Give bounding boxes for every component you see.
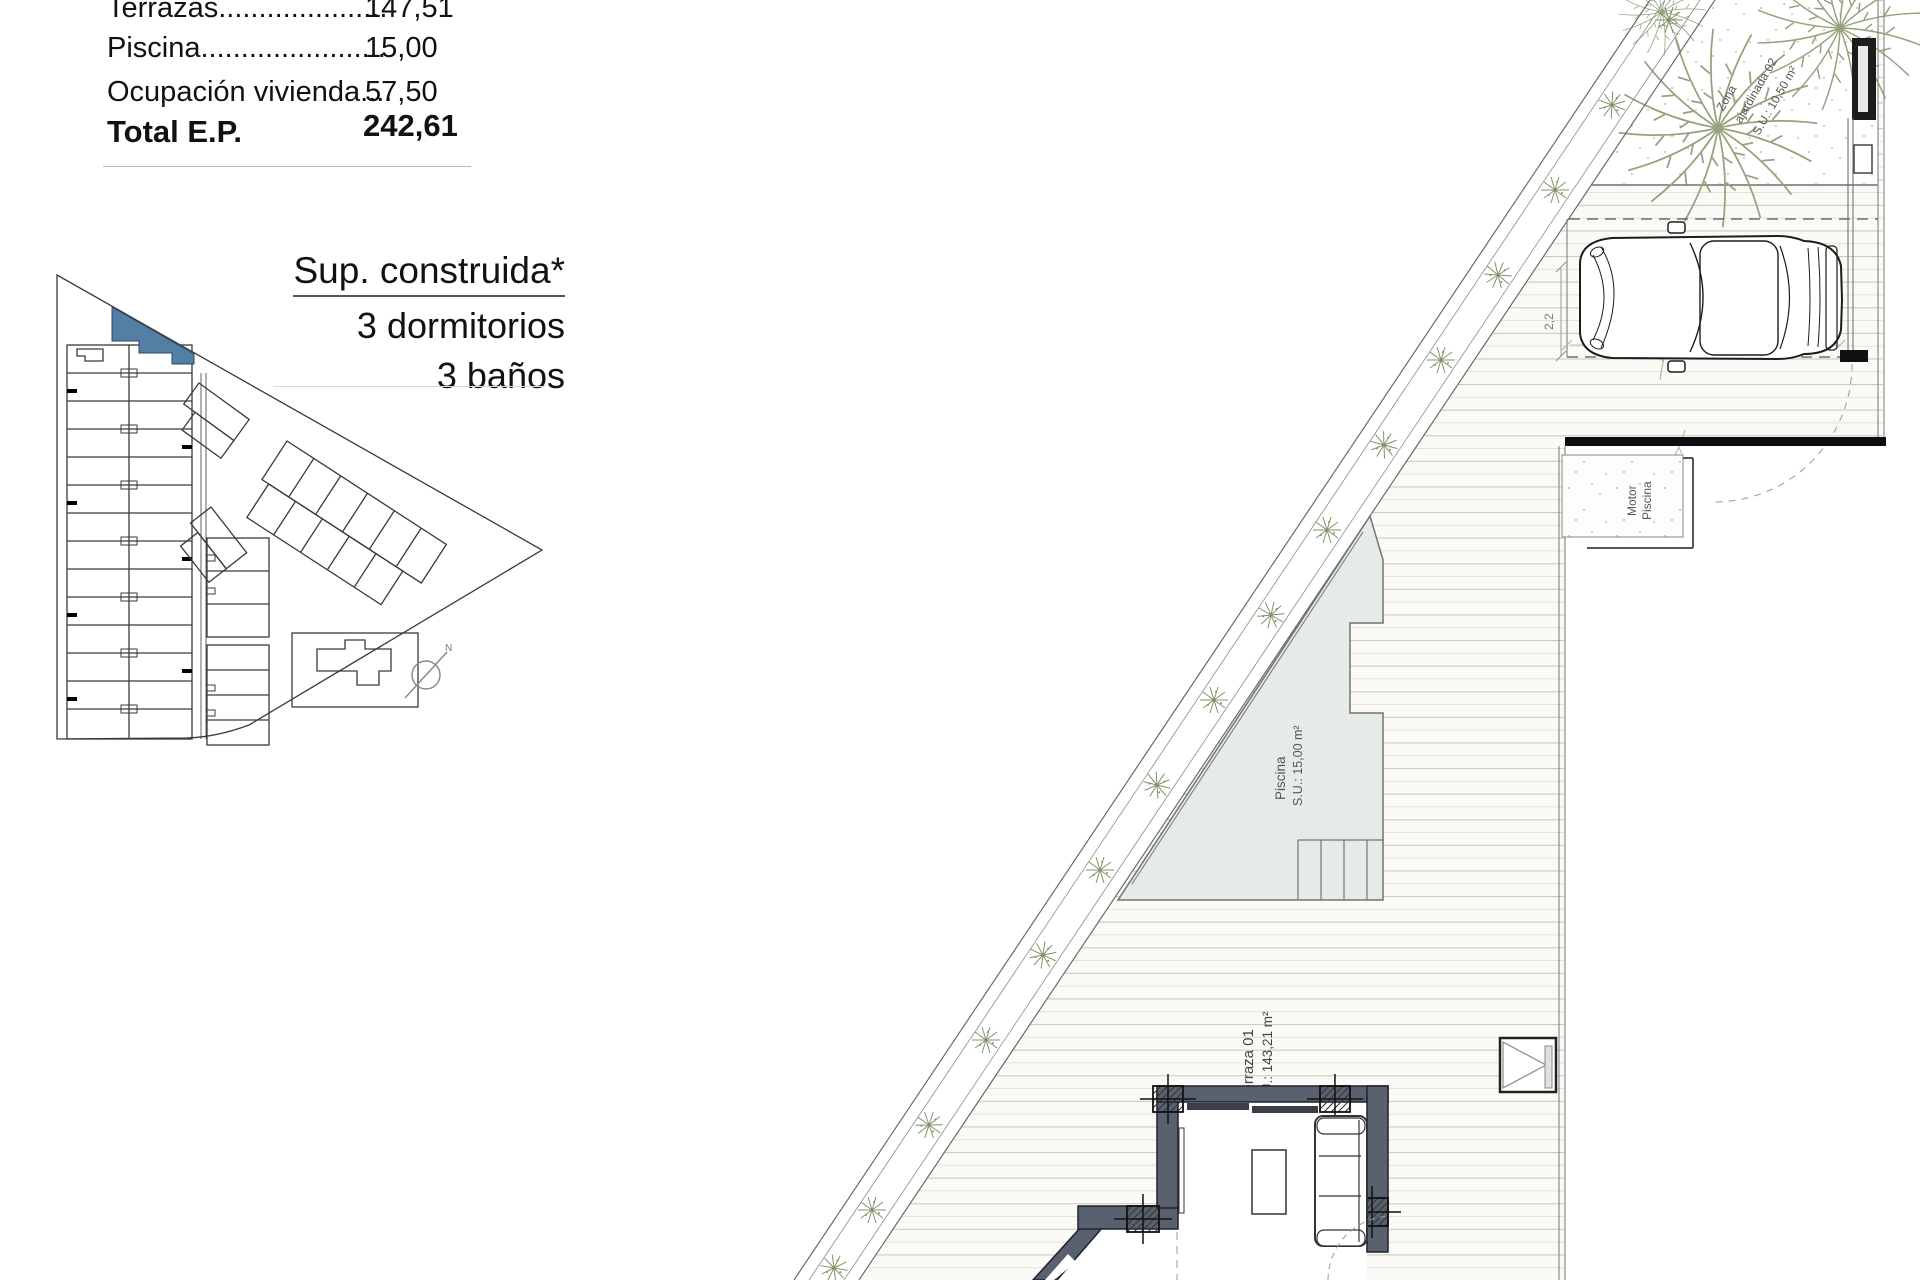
site-cluster-row (240, 441, 446, 617)
pool-motor-area: Motor Piscina (1562, 437, 1886, 548)
row-value: 147,51 (365, 0, 454, 25)
row-value: 57,50 (365, 76, 438, 109)
table-row: Terrazas..................... 147,51 (105, 0, 485, 32)
sofa (1315, 1116, 1367, 1246)
pool-area-label: S.U.: 15,00 m² (1291, 725, 1305, 806)
sliding-door-panel[interactable] (1252, 1106, 1318, 1113)
table-row: Piscina....................... 15,00 (105, 32, 485, 72)
car (1580, 222, 1842, 372)
site-middle-units (207, 538, 269, 745)
car-mirror (1668, 361, 1685, 372)
glass-partition (1179, 1128, 1184, 1213)
sliding-door-panel[interactable] (1187, 1103, 1249, 1110)
site-highlighted-unit[interactable] (112, 307, 194, 364)
site-small-structure (77, 349, 103, 361)
deck-hatch-symbol (1500, 1038, 1556, 1092)
site-plan: N (49, 245, 549, 750)
row-label: Ocupación vivienda.... (107, 76, 392, 109)
row-value: 15,00 (365, 32, 438, 65)
north-arrow-icon (405, 652, 447, 698)
coffee-table (1252, 1150, 1286, 1214)
table-total-row: Total E.P. 242,61 (105, 114, 485, 154)
table-bottom-rule (103, 166, 471, 167)
car-mirror (1668, 222, 1685, 233)
pool: Piscina S.U.: 15,00 m² (1118, 516, 1383, 900)
gate-post (1840, 350, 1868, 362)
north-label: N (445, 643, 452, 654)
motor-label: Motor (1625, 485, 1639, 516)
row-label: Piscina....................... (107, 32, 386, 65)
total-label: Total E.P. (107, 114, 242, 150)
site-left-units (67, 345, 192, 739)
site-path-lines (201, 373, 206, 739)
row-label: Terrazas..................... (107, 0, 387, 25)
parking-width-dim: 2,2 (1542, 313, 1556, 330)
retaining-wall (1565, 437, 1886, 446)
motor-label2: Piscina (1640, 481, 1654, 520)
pool-label: Piscina (1273, 756, 1288, 800)
total-value: 242,61 (363, 108, 458, 144)
terrace-plan: Piscina S.U.: 15,00 m² Terraza 01 S.U.: … (700, 0, 1920, 1280)
site-central-building (292, 633, 418, 707)
